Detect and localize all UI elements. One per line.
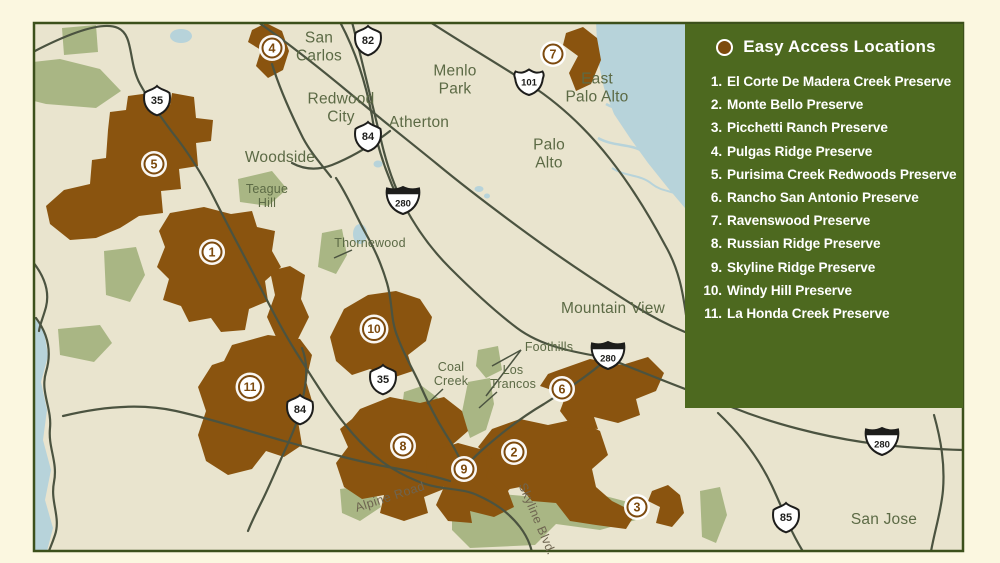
route-84-shield-icon: 84 bbox=[353, 121, 383, 158]
route-280-shield-icon: 280 bbox=[590, 340, 626, 376]
legend-item: 4.Pulgas Ridge Preserve bbox=[697, 140, 955, 163]
route-84-shield-icon: 84 bbox=[285, 394, 315, 431]
preserve-marker-8[interactable]: 8 bbox=[393, 436, 414, 457]
legend-item: 1.El Corte De Madera Creek Preserve bbox=[697, 70, 955, 93]
city-label: MenloPark bbox=[433, 62, 476, 97]
legend-list: 1.El Corte De Madera Creek Preserve2.Mon… bbox=[697, 70, 955, 325]
road-name-label: Skyline Blvd. bbox=[515, 481, 558, 557]
route-280-shield-icon: 280 bbox=[864, 426, 900, 462]
legend-item-number: 3. bbox=[697, 116, 722, 139]
feature-label: TeagueHill bbox=[246, 182, 288, 211]
legend-item-number: 6. bbox=[697, 186, 722, 209]
preserve-marker-4[interactable]: 4 bbox=[262, 38, 283, 59]
route-shield-number: 101 bbox=[521, 78, 538, 89]
route-35-shield-icon: 35 bbox=[142, 85, 172, 122]
route-shield-number: 280 bbox=[874, 440, 890, 451]
city-label: Mountain View bbox=[561, 300, 665, 318]
easy-access-dot-icon bbox=[716, 39, 733, 56]
route-280-shield-icon: 280 bbox=[385, 185, 421, 221]
city-label: SanCarlos bbox=[296, 29, 342, 64]
legend-item: 10.Windy Hill Preserve bbox=[697, 279, 955, 302]
route-shield-number: 84 bbox=[294, 404, 307, 416]
legend-title-row: Easy Access Locations bbox=[697, 37, 955, 57]
route-82-shield-icon: 82 bbox=[353, 25, 383, 62]
city-label: EastPalo Alto bbox=[566, 70, 629, 105]
feature-label: CoalCreek bbox=[434, 360, 468, 389]
preserve-marker-11[interactable]: 11 bbox=[238, 375, 262, 399]
city-label: Woodside bbox=[245, 149, 315, 167]
legend-item-name: Monte Bello Preserve bbox=[727, 93, 863, 116]
legend-item-name: Russian Ridge Preserve bbox=[727, 232, 880, 255]
legend-item: 5.Purisima Creek Redwoods Preserve bbox=[697, 163, 955, 186]
legend-item: 8.Russian Ridge Preserve bbox=[697, 232, 955, 255]
legend-panel: Easy Access Locations 1.El Corte De Made… bbox=[685, 24, 963, 408]
legend-item: 11.La Honda Creek Preserve bbox=[697, 302, 955, 325]
road-name-label: Alpine Road bbox=[353, 479, 426, 515]
legend-item-number: 11. bbox=[697, 302, 722, 325]
preserve-marker-1[interactable]: 1 bbox=[202, 242, 223, 263]
route-shield-number: 85 bbox=[780, 512, 792, 524]
preserve-marker-3[interactable]: 3 bbox=[627, 497, 648, 518]
legend-item-number: 5. bbox=[697, 163, 722, 186]
route-shield-number: 82 bbox=[362, 35, 374, 47]
legend-item-name: Picchetti Ranch Preserve bbox=[727, 116, 888, 139]
legend-item: 3.Picchetti Ranch Preserve bbox=[697, 116, 955, 139]
preserve-marker-6[interactable]: 6 bbox=[552, 379, 573, 400]
route-101-shield-icon: 101 bbox=[512, 67, 546, 102]
preserve-marker-7[interactable]: 7 bbox=[543, 44, 564, 65]
legend-item-name: Purisima Creek Redwoods Preserve bbox=[727, 163, 957, 186]
legend-item-name: La Honda Creek Preserve bbox=[727, 302, 889, 325]
legend-item-number: 9. bbox=[697, 256, 722, 279]
legend-item-number: 2. bbox=[697, 93, 722, 116]
route-shield-number: 280 bbox=[600, 354, 616, 365]
legend-item-number: 7. bbox=[697, 209, 722, 232]
legend-item-name: Pulgas Ridge Preserve bbox=[727, 140, 872, 163]
preserve-marker-5[interactable]: 5 bbox=[144, 154, 165, 175]
city-label: San Jose bbox=[851, 511, 917, 529]
legend-item-name: Rancho San Antonio Preserve bbox=[727, 186, 919, 209]
feature-label: Thornewood bbox=[334, 236, 406, 250]
legend-item-number: 1. bbox=[697, 70, 722, 93]
route-85-shield-icon: 85 bbox=[771, 502, 801, 539]
city-label: Atherton bbox=[389, 114, 449, 132]
legend-item: 7.Ravenswood Preserve bbox=[697, 209, 955, 232]
legend-item: 6.Rancho San Antonio Preserve bbox=[697, 186, 955, 209]
route-shield-number: 35 bbox=[377, 374, 389, 386]
legend-title: Easy Access Locations bbox=[743, 37, 936, 57]
legend-item-number: 8. bbox=[697, 232, 722, 255]
preserve-map-page: SanCarlosRedwoodCityMenloParkAthertonEas… bbox=[0, 0, 1000, 563]
legend-item-name: Ravenswood Preserve bbox=[727, 209, 870, 232]
legend-item-name: Windy Hill Preserve bbox=[727, 279, 852, 302]
route-shield-number: 35 bbox=[151, 95, 163, 107]
route-shield-number: 280 bbox=[395, 199, 411, 210]
legend-item-number: 4. bbox=[697, 140, 722, 163]
feature-label: Foothills bbox=[525, 340, 573, 354]
route-35-shield-icon: 35 bbox=[368, 364, 398, 401]
legend-item: 2.Monte Bello Preserve bbox=[697, 93, 955, 116]
legend-item-number: 10. bbox=[697, 279, 722, 302]
legend-item-name: El Corte De Madera Creek Preserve bbox=[727, 70, 951, 93]
city-label: PaloAlto bbox=[533, 136, 565, 171]
legend-item: 9.Skyline Ridge Preserve bbox=[697, 256, 955, 279]
route-shield-number: 84 bbox=[362, 131, 375, 143]
preserve-marker-10[interactable]: 10 bbox=[362, 317, 386, 341]
feature-label: LosTrancos bbox=[490, 363, 536, 392]
legend-item-name: Skyline Ridge Preserve bbox=[727, 256, 875, 279]
preserve-marker-9[interactable]: 9 bbox=[454, 459, 475, 480]
preserve-marker-2[interactable]: 2 bbox=[504, 442, 525, 463]
